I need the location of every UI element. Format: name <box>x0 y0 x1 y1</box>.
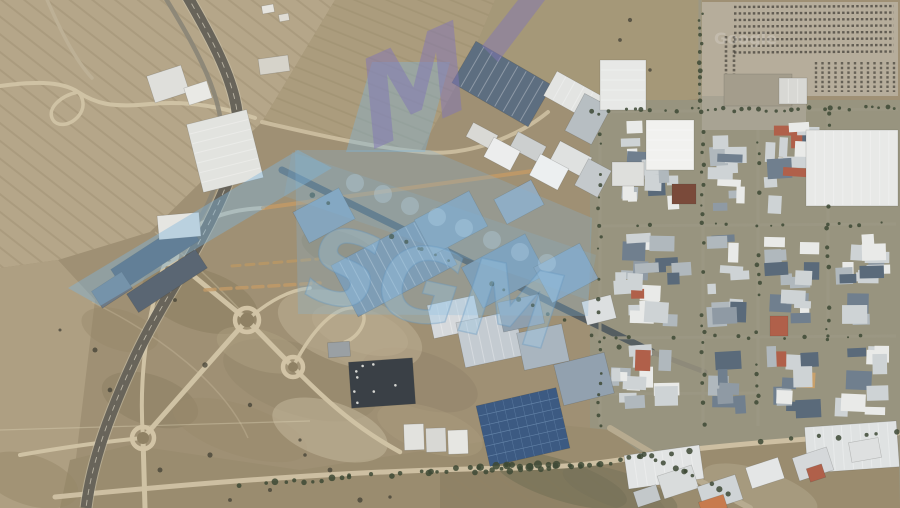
tree <box>747 337 751 341</box>
tree <box>686 448 692 454</box>
tree <box>698 19 701 22</box>
building <box>612 162 644 186</box>
tree <box>638 107 643 112</box>
tree <box>453 465 459 471</box>
tree <box>756 141 758 143</box>
tree <box>871 105 874 108</box>
tree <box>597 278 600 281</box>
warehouse <box>712 307 737 325</box>
tree <box>578 464 583 469</box>
tree <box>700 381 704 385</box>
bush <box>648 68 651 71</box>
tree <box>714 108 717 111</box>
tree <box>553 461 561 469</box>
warehouse <box>713 203 728 211</box>
building-roof <box>278 13 289 22</box>
tree <box>826 204 830 208</box>
warehouse <box>795 399 821 418</box>
tree <box>864 105 867 108</box>
tree <box>285 480 289 484</box>
tree <box>698 68 703 73</box>
tree <box>721 106 725 110</box>
warehouse <box>635 350 651 371</box>
tree <box>598 196 600 198</box>
tree <box>590 334 594 338</box>
tree <box>701 270 705 274</box>
tree <box>600 235 603 238</box>
satellite-map: SGM M Google <box>0 0 900 508</box>
warehouse <box>847 348 866 358</box>
tree <box>736 334 740 338</box>
tree <box>847 336 849 338</box>
bush <box>158 468 163 473</box>
building-roof <box>770 316 788 336</box>
tree <box>702 183 706 187</box>
tree <box>600 372 603 375</box>
bush <box>202 362 207 367</box>
bush <box>173 298 177 302</box>
tree <box>702 373 706 377</box>
tree <box>826 334 829 337</box>
tree <box>626 455 631 460</box>
tree <box>725 223 728 226</box>
tree <box>807 105 811 109</box>
bush <box>248 403 252 407</box>
tree <box>319 479 323 483</box>
warehouse <box>794 301 811 309</box>
tree <box>700 325 703 328</box>
tree <box>700 170 703 173</box>
warehouse <box>764 237 785 247</box>
tree <box>597 310 601 314</box>
building <box>426 428 447 453</box>
tree <box>802 335 806 339</box>
tree <box>292 478 296 482</box>
building <box>806 130 898 206</box>
tree <box>311 480 314 483</box>
roundabout-island <box>288 362 298 372</box>
tree <box>701 13 704 16</box>
watermark-letter-blob <box>401 197 419 215</box>
tree <box>476 465 481 470</box>
tree <box>757 273 760 276</box>
warehouse <box>866 385 888 401</box>
tree <box>526 463 533 470</box>
tree <box>757 191 761 195</box>
tree <box>634 107 637 110</box>
warehouse <box>717 154 743 163</box>
warehouse <box>622 241 646 261</box>
building <box>404 424 425 451</box>
tree <box>783 337 786 340</box>
tree <box>755 224 758 227</box>
warehouse <box>728 243 739 263</box>
warehouse <box>628 192 637 202</box>
tree <box>700 212 704 216</box>
tree <box>661 460 666 465</box>
tree <box>758 439 764 445</box>
building <box>779 78 807 104</box>
watermark-letter-blob <box>346 174 364 192</box>
building-roof <box>672 184 696 204</box>
tree <box>893 107 896 110</box>
tree <box>599 173 602 176</box>
tree <box>865 433 869 437</box>
tree <box>603 336 606 339</box>
tree <box>420 470 424 474</box>
building-roof <box>426 428 447 453</box>
warehouse <box>644 301 669 323</box>
tree <box>444 470 448 474</box>
tree <box>698 27 701 30</box>
building <box>770 316 788 336</box>
tree <box>700 151 703 154</box>
building-roof <box>646 120 694 170</box>
bush <box>328 468 333 473</box>
tree <box>675 109 679 113</box>
screenshot-root: SGM M Google <box>0 0 900 508</box>
tree <box>617 345 622 350</box>
warehouse <box>800 352 819 367</box>
building <box>600 60 646 110</box>
warehouse <box>791 313 811 324</box>
street <box>595 336 896 338</box>
tree <box>758 152 761 155</box>
tree <box>618 457 623 462</box>
tree <box>765 110 768 113</box>
tree <box>789 107 794 112</box>
tree <box>598 132 602 136</box>
tree <box>701 341 704 344</box>
tree <box>625 108 628 111</box>
tree <box>500 467 504 471</box>
tree <box>699 110 704 115</box>
warehouse <box>717 178 741 186</box>
tree <box>483 469 488 474</box>
tree <box>599 424 602 427</box>
tree <box>597 393 600 396</box>
tree <box>596 401 599 404</box>
tree <box>669 451 674 456</box>
tree <box>826 338 829 341</box>
tree <box>534 460 542 468</box>
tree <box>894 429 900 435</box>
building <box>448 430 469 455</box>
building <box>646 120 694 170</box>
tree <box>700 193 703 196</box>
warehouse <box>766 346 776 367</box>
bush <box>618 38 622 42</box>
tree <box>301 480 306 485</box>
tree <box>587 463 592 468</box>
roundabout-island <box>240 313 254 327</box>
warehouse <box>715 351 742 371</box>
tree <box>877 106 880 109</box>
bush <box>207 452 212 457</box>
warehouse <box>839 274 856 283</box>
bush <box>92 347 97 352</box>
warehouse <box>654 386 678 406</box>
tree <box>789 436 793 440</box>
warehouse <box>615 272 626 284</box>
tree <box>836 435 842 441</box>
tree <box>754 372 758 376</box>
tree <box>599 348 602 351</box>
tree <box>700 204 702 206</box>
tree <box>648 108 652 112</box>
tree <box>828 124 831 127</box>
warehouse <box>659 170 670 183</box>
tree <box>698 83 701 86</box>
bush <box>357 497 362 502</box>
warehouse <box>707 236 728 249</box>
tree <box>781 223 784 226</box>
tree <box>702 163 706 167</box>
tree <box>329 474 336 481</box>
bush <box>628 18 632 22</box>
tree <box>649 453 654 458</box>
tree <box>874 432 877 435</box>
warehouse <box>635 262 659 273</box>
imagery-watermark-text: Google <box>714 29 777 48</box>
tree <box>472 470 478 476</box>
tree <box>701 401 705 405</box>
tree <box>398 471 403 476</box>
tree <box>825 328 827 330</box>
building-roof <box>261 4 274 14</box>
tree <box>615 336 618 339</box>
warehouse <box>627 273 643 291</box>
bush <box>298 438 301 441</box>
tree <box>698 99 702 103</box>
building <box>278 13 289 22</box>
warehouse <box>842 305 867 324</box>
tree <box>827 319 831 323</box>
building <box>261 4 274 14</box>
tree <box>673 465 679 471</box>
tree <box>597 113 600 116</box>
tree <box>672 336 676 340</box>
building <box>328 341 351 357</box>
tree <box>597 247 599 249</box>
tree <box>754 330 758 334</box>
tree <box>598 340 601 343</box>
tree <box>848 108 851 111</box>
tree <box>827 265 832 270</box>
tree <box>691 107 694 110</box>
tree <box>347 473 351 477</box>
tree <box>597 414 601 418</box>
building-roof <box>404 424 425 451</box>
tree <box>796 107 800 111</box>
tree <box>702 241 706 245</box>
tree <box>596 207 600 211</box>
tree <box>684 469 688 473</box>
tree <box>426 470 432 476</box>
warehouse <box>776 390 793 404</box>
tree <box>589 109 594 114</box>
warehouse <box>779 137 788 157</box>
tree <box>783 110 786 113</box>
warehouse <box>626 233 651 244</box>
warehouse <box>621 138 641 147</box>
tree <box>838 222 841 225</box>
watermark-letter-blob <box>374 185 392 203</box>
tree <box>713 334 717 338</box>
building-roof <box>448 430 469 455</box>
tree <box>755 363 757 365</box>
bush <box>388 495 391 498</box>
warehouse <box>730 270 749 280</box>
tree <box>826 254 830 258</box>
tree <box>568 463 572 467</box>
warehouse <box>775 249 787 261</box>
tree <box>607 109 611 113</box>
tree <box>838 106 842 110</box>
building-roof <box>612 162 644 186</box>
tree <box>237 483 242 488</box>
tree <box>702 330 706 334</box>
tree <box>698 33 702 37</box>
tree <box>857 223 861 227</box>
tree <box>707 109 709 111</box>
tree <box>849 224 853 228</box>
tree <box>598 183 602 187</box>
warehouse <box>795 270 813 285</box>
warehouse <box>707 284 716 295</box>
tree <box>701 142 705 146</box>
tree <box>636 224 639 227</box>
building <box>672 184 696 204</box>
tree <box>758 281 762 285</box>
tree <box>597 224 601 228</box>
tree <box>710 482 715 487</box>
tree <box>340 475 345 480</box>
tree <box>828 105 833 110</box>
tree <box>755 263 760 268</box>
tree <box>715 223 717 225</box>
tree <box>757 253 761 257</box>
tree <box>492 462 500 470</box>
tree <box>697 107 699 109</box>
tree <box>756 394 760 398</box>
tree <box>654 458 658 462</box>
tree <box>827 112 831 116</box>
bush <box>58 328 61 331</box>
tree <box>827 306 831 310</box>
warehouse <box>626 121 642 134</box>
bush <box>303 453 307 457</box>
bush <box>108 388 113 393</box>
tree <box>817 434 821 438</box>
tree <box>698 50 702 54</box>
tree <box>770 225 772 227</box>
tree <box>435 470 438 473</box>
tree <box>880 221 882 223</box>
tree <box>597 461 603 467</box>
tree <box>272 478 279 485</box>
warehouse <box>841 393 866 412</box>
tree <box>826 223 830 227</box>
building-roof <box>328 341 351 357</box>
tree <box>716 486 722 492</box>
tree <box>726 491 731 496</box>
tree <box>700 313 704 317</box>
tree <box>825 245 829 249</box>
tree <box>823 107 827 111</box>
tree <box>756 107 761 112</box>
tree <box>755 384 758 387</box>
warehouse <box>611 368 620 381</box>
warehouse <box>667 273 680 285</box>
tree <box>546 462 552 468</box>
tree <box>739 107 743 111</box>
warehouse <box>872 354 887 374</box>
warehouse <box>624 395 645 409</box>
bush <box>268 488 272 492</box>
tree <box>758 293 761 296</box>
warehouse <box>862 243 886 260</box>
tree <box>700 350 704 354</box>
tree <box>700 221 704 225</box>
tree <box>264 481 268 485</box>
tree <box>369 472 373 476</box>
watermark-letter-blob <box>428 208 446 226</box>
warehouse <box>736 186 745 203</box>
bush <box>228 498 232 502</box>
tree <box>747 106 751 110</box>
warehouse <box>859 265 884 278</box>
tree <box>698 92 701 95</box>
warehouse <box>768 195 782 214</box>
tree <box>609 462 613 466</box>
tree <box>648 223 652 227</box>
tree <box>600 143 602 145</box>
tree <box>703 422 707 426</box>
building-roof <box>600 60 646 110</box>
warehouse <box>719 383 739 395</box>
tree <box>824 226 829 231</box>
warehouse <box>658 350 671 371</box>
tree <box>641 452 646 457</box>
warehouse <box>734 395 746 414</box>
tree <box>389 473 395 479</box>
warehouse <box>865 407 886 415</box>
tree <box>664 109 667 112</box>
tree <box>691 474 695 478</box>
building-roof <box>779 78 807 104</box>
tree <box>886 105 891 110</box>
tree <box>757 161 761 165</box>
tree <box>563 318 567 322</box>
tree <box>697 60 702 65</box>
tree <box>754 400 758 404</box>
tree <box>732 109 736 113</box>
warehouse <box>800 242 820 254</box>
tree <box>596 297 600 301</box>
warehouse <box>783 167 809 177</box>
tree <box>700 42 703 45</box>
building <box>348 358 415 408</box>
tree <box>702 130 706 134</box>
tree <box>599 382 602 385</box>
warehouse <box>708 167 733 179</box>
building-roof <box>348 358 415 408</box>
warehouse <box>793 366 813 387</box>
tree <box>468 465 473 470</box>
roundabout-island <box>137 432 149 444</box>
tree <box>774 109 777 112</box>
